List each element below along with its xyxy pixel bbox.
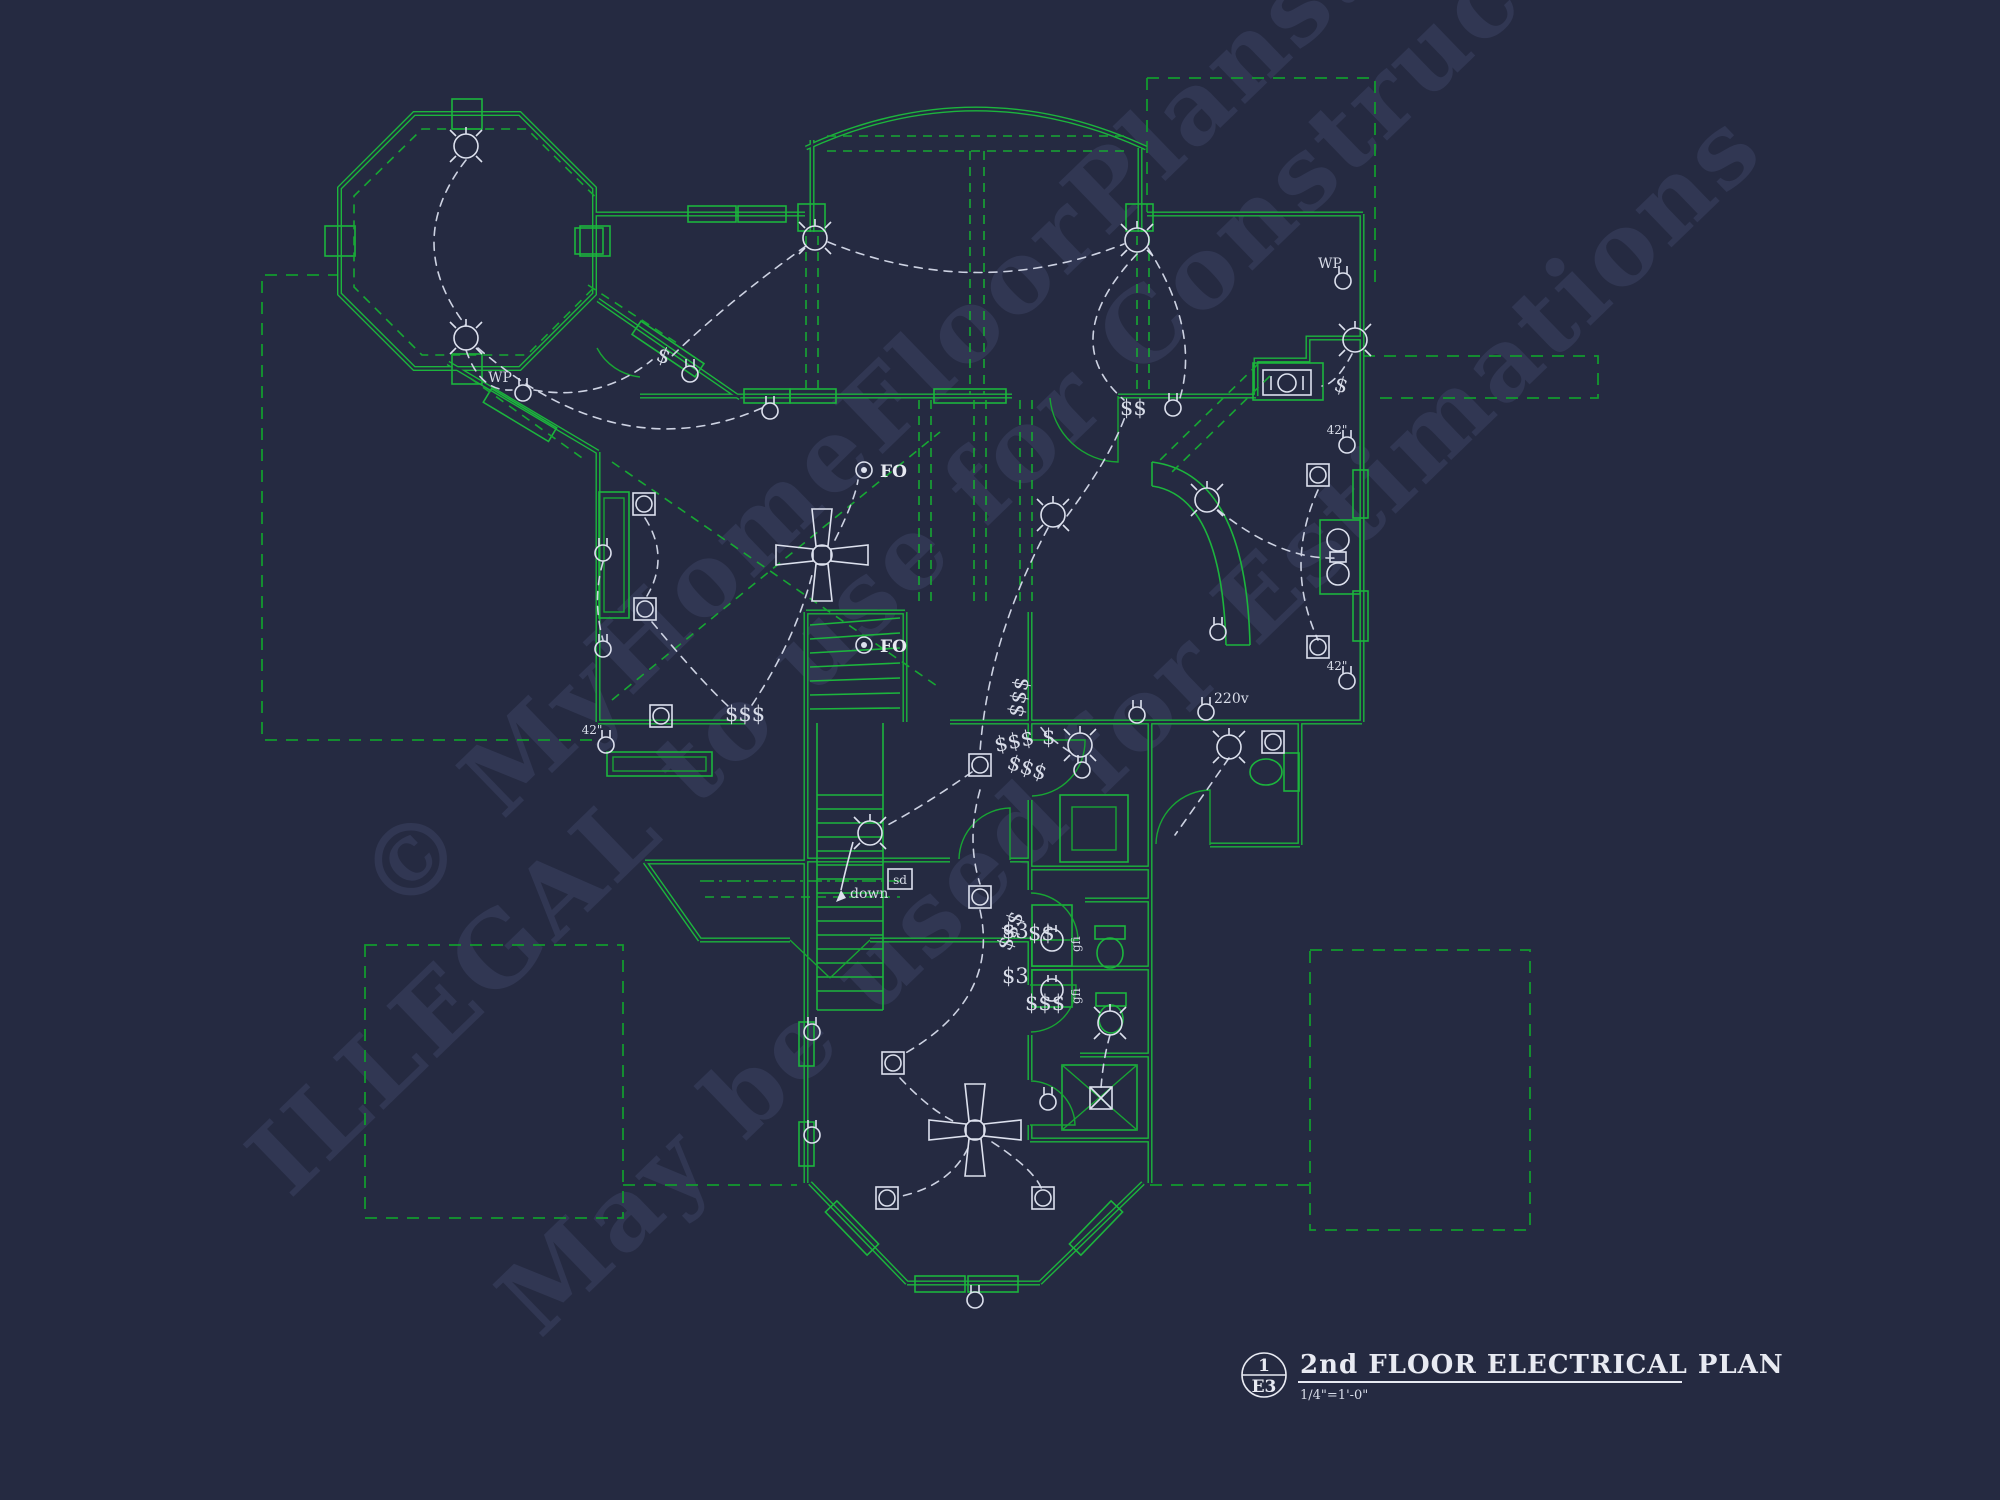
ceiling-light-icon <box>854 814 886 849</box>
fo-label: FO <box>880 462 907 482</box>
switch-label: $3 <box>1002 919 1029 943</box>
gfi-label: gfi <box>1069 988 1083 1004</box>
recessed-light-icon <box>633 493 655 515</box>
outlet-icon <box>762 396 778 419</box>
switch-label: $$ <box>1120 396 1147 420</box>
fo-label: FO <box>880 637 907 657</box>
recessed-light-icon <box>1262 731 1284 753</box>
weatherproof-outlet-icon <box>515 378 531 401</box>
switch-label: $$ <box>1028 921 1055 945</box>
switch-label: $$$ <box>725 702 765 726</box>
drawing-title: 2nd FLOOR ELECTRICAL PLAN <box>1300 1350 1784 1380</box>
switch-label: $ <box>653 342 674 369</box>
ceiling-fan-icon <box>929 1084 1021 1176</box>
wp-label: WP <box>1318 256 1342 272</box>
smoke-detector-label: sd <box>893 873 907 887</box>
sheet-number: E3 <box>1252 1377 1277 1397</box>
ceiling-light-icon <box>450 319 482 354</box>
switch-label: $ <box>1042 725 1055 749</box>
outlet-icon <box>1040 1087 1056 1110</box>
stair-down-label: down <box>850 886 888 902</box>
ceiling-light-icon <box>1191 481 1223 516</box>
switch-label: $3 <box>1002 964 1029 988</box>
recessed-light-icon <box>1032 1187 1054 1209</box>
recessed-light-icon <box>1307 636 1329 658</box>
drawing-scale: 1/4"=1'-0" <box>1300 1388 1368 1403</box>
ceiling-light-icon <box>450 127 482 162</box>
watermark-line-2: ILLEGAL to use for Construction <box>225 0 1716 1217</box>
toilet <box>1095 926 1125 968</box>
floor-plan-drawing: © MyHomeFloorPlans.com ILLEGAL to use fo… <box>0 0 2000 1500</box>
electrical-plan-sheet: © MyHomeFloorPlans.com ILLEGAL to use fo… <box>0 0 2000 1500</box>
exhaust-fan-icon <box>1090 1087 1112 1109</box>
switch-label: $$$ <box>1025 991 1065 1015</box>
outlet-220v-label: 220v <box>1214 691 1249 707</box>
outlet-42-label: 42" <box>1327 423 1348 437</box>
watermark: © MyHomeFloorPlans.com ILLEGAL to use fo… <box>225 0 1785 1357</box>
gfi-label: gfi <box>1069 936 1083 952</box>
outlet-42-label: 42" <box>1327 659 1348 673</box>
ceiling-light-icon <box>799 219 831 254</box>
recessed-light-icon <box>882 1052 904 1074</box>
switch-label: $ <box>1332 372 1351 399</box>
toilet <box>1250 753 1299 791</box>
detail-number: 1 <box>1258 1356 1270 1376</box>
recessed-light-icon <box>876 1187 898 1209</box>
title-block: 1 E3 2nd FLOOR ELECTRICAL PLAN 1/4"=1'-0… <box>1242 1350 1784 1403</box>
wp-label: WP <box>488 370 512 386</box>
outlet-42-label: 42" <box>582 723 603 737</box>
outlet-icon <box>967 1285 983 1308</box>
